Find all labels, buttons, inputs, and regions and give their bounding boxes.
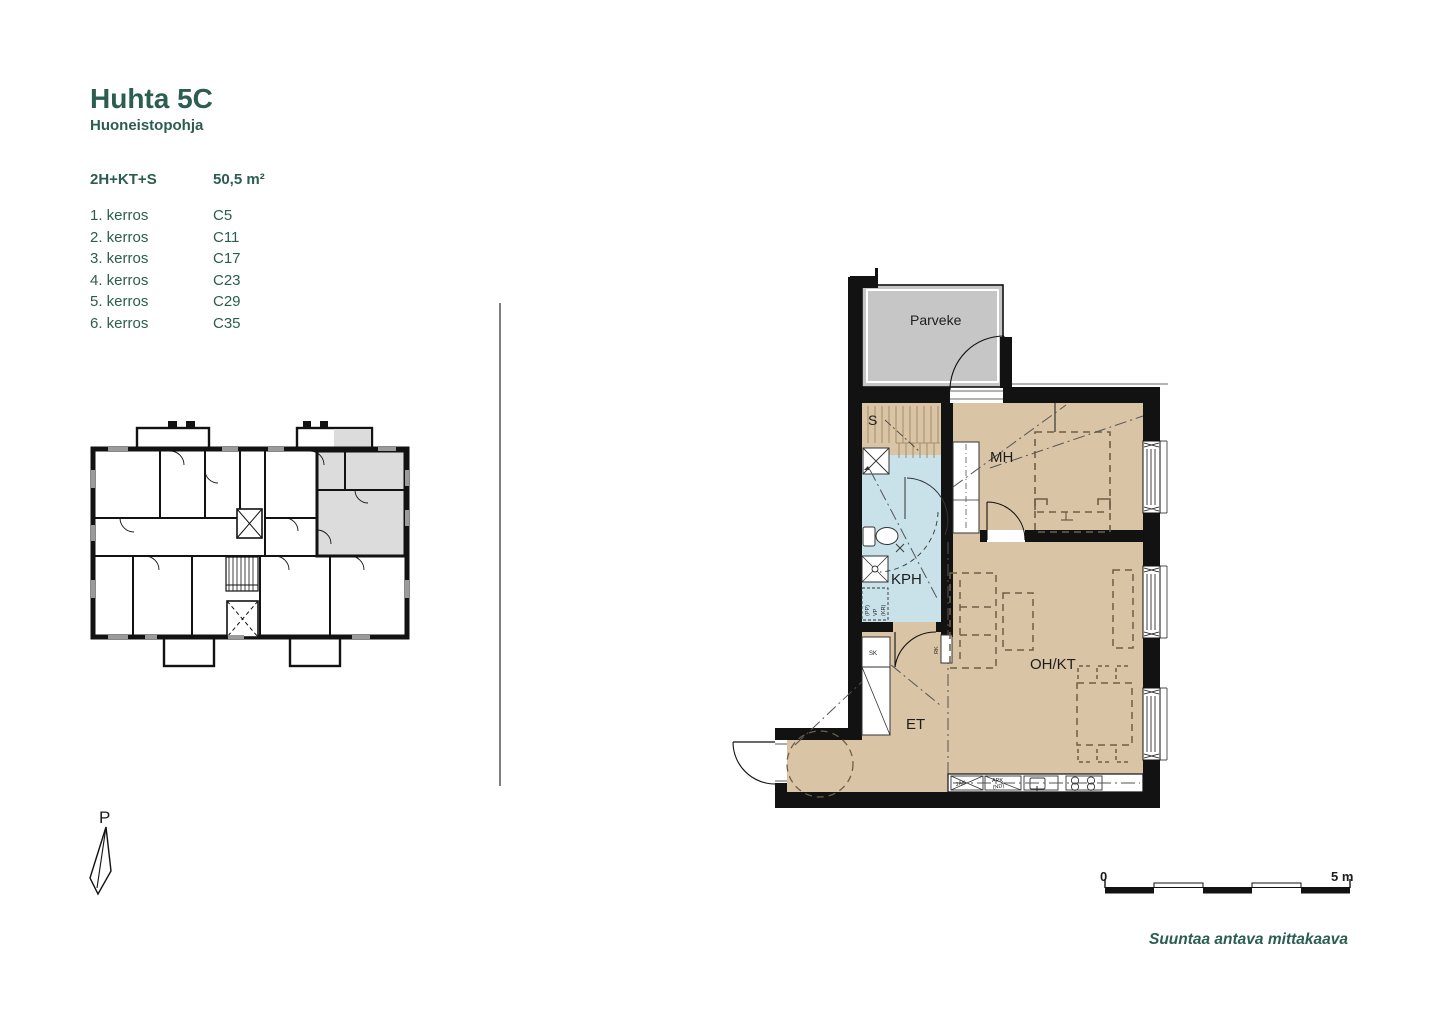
sk-label: SK — [869, 651, 877, 657]
apartment-type: 2H+KT+S — [90, 171, 213, 188]
living-kitchen-label: OH/KT — [1030, 656, 1076, 673]
floor-row: 5. kerrosC29 — [90, 291, 265, 313]
scale-bar: 0 5 m — [1090, 858, 1362, 900]
window — [1143, 441, 1167, 513]
floor-label: 5. kerros — [90, 291, 213, 313]
sauna-label: S — [868, 412, 877, 428]
page-subtitle: Huoneistopohja — [90, 117, 265, 134]
floor-code: C23 — [213, 270, 265, 292]
shower-drain-square — [863, 448, 889, 474]
floor-code: C35 — [213, 313, 265, 335]
washer-vp-label: VP — [873, 608, 879, 616]
toilet — [863, 527, 898, 546]
apartment-summary: 2H+KT+S 50,5 m² — [90, 171, 265, 188]
floor-code: C17 — [213, 248, 265, 270]
scale-start-label: 0 — [1100, 869, 1107, 884]
apartment-floor-plan: (PP) VP (KR) RK SK JÄK — [725, 258, 1175, 818]
floor-label: 6. kerros — [90, 313, 213, 335]
scale-caption: Suuntaa antava mittakaava — [948, 931, 1348, 949]
rk-label: RK — [934, 646, 940, 654]
balcony-slab — [862, 285, 1003, 387]
balcony-label: Parveke — [910, 312, 962, 328]
info-panel: Huhta 5C Huoneistopohja 2H+KT+S 50,5 m² … — [90, 84, 265, 334]
washer-pp-label: (PP) — [865, 605, 871, 616]
washbasin — [862, 556, 888, 582]
bedroom-label: MH — [990, 449, 1013, 466]
apartment-area: 50,5 m² — [213, 171, 265, 188]
window — [1143, 688, 1167, 760]
floor-label: 2. kerros — [90, 227, 213, 249]
kitchen-counter: JÄK APK (ND) — [948, 774, 1143, 792]
floor-row: 6. kerrosC35 — [90, 313, 265, 335]
washer-kr-label: (KR) — [881, 605, 887, 616]
floor-list: 1. kerrosC5 2. kerrosC11 3. kerrosC17 4.… — [90, 205, 265, 334]
bathroom-label: KPH — [891, 571, 922, 588]
floor-code: C29 — [213, 291, 265, 313]
key-balcony — [164, 636, 214, 666]
bedroom-wardrobe — [953, 442, 979, 533]
building-key-plan — [85, 418, 417, 674]
floor-row: 1. kerrosC5 — [90, 205, 265, 227]
floor-row: 2. kerrosC11 — [90, 227, 265, 249]
hall-closets: SK — [862, 637, 890, 735]
entry-door — [733, 742, 787, 784]
floor-code: C11 — [213, 227, 265, 249]
floor-label: 1. kerros — [90, 205, 213, 227]
vertical-divider — [499, 303, 501, 786]
floor-row: 4. kerrosC23 — [90, 270, 265, 292]
floor-code: C5 — [213, 205, 265, 227]
floor-label: 3. kerros — [90, 248, 213, 270]
north-arrow: P — [82, 798, 128, 900]
window — [1143, 566, 1167, 638]
entry-label: ET — [906, 716, 925, 733]
floor-row: 3. kerrosC17 — [90, 248, 265, 270]
north-arrow-shape — [90, 827, 111, 894]
north-label: P — [99, 808, 110, 827]
key-balcony — [290, 636, 340, 666]
floor-label: 4. kerros — [90, 270, 213, 292]
scale-bar-segments — [1105, 879, 1350, 894]
page-title: Huhta 5C — [90, 84, 265, 114]
